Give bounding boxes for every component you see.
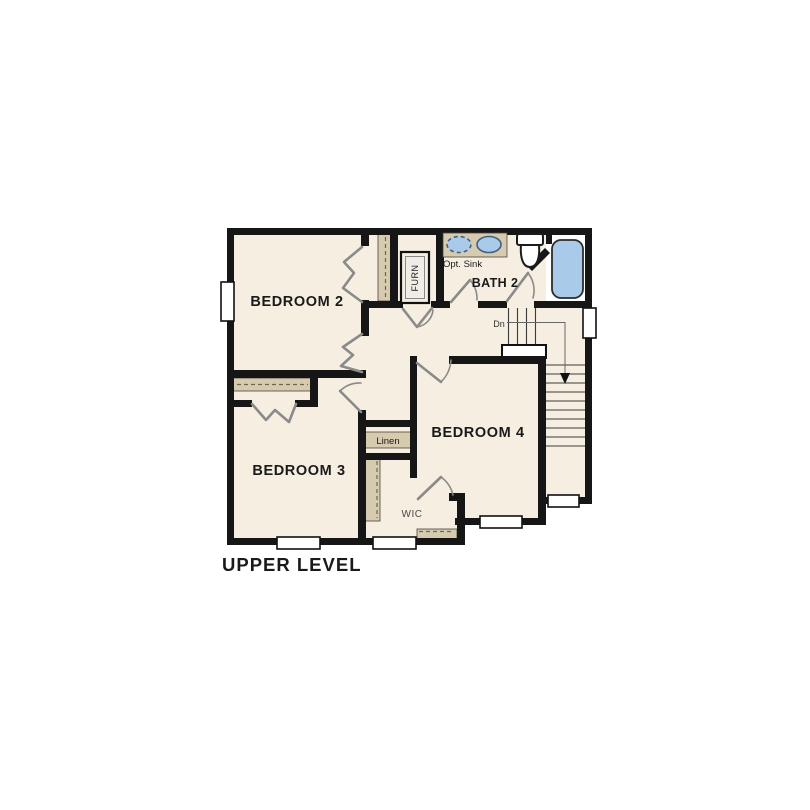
wall-linen-bottom: [358, 453, 417, 460]
sink-basin: [477, 237, 501, 253]
wall-bed4-right: [538, 358, 546, 525]
toilet-bowl: [521, 245, 539, 267]
wall-bed2-bed3-divider: [227, 370, 366, 378]
bath2-label: BATH 2: [472, 276, 519, 290]
wic-side-shelf: [365, 459, 380, 521]
opt-sink-label: Opt. Sink: [443, 259, 482, 270]
bedroom3-label: BEDROOM 3: [252, 463, 345, 479]
wall-bed4-top: [449, 356, 546, 364]
furnace-label: FURN: [410, 265, 420, 292]
wall-bottom-left: [227, 538, 465, 545]
plan-title: UPPER LEVEL: [222, 554, 362, 575]
bathtub: [552, 240, 583, 298]
bedroom4-window: [480, 516, 522, 528]
bedroom2-label: BEDROOM 2: [250, 294, 343, 310]
wall-left: [227, 228, 234, 545]
wall-wic-corner: [449, 493, 465, 501]
stairwell-right-window: [583, 308, 596, 338]
toilet-tank: [517, 234, 543, 245]
stairwell-bottom-window: [548, 495, 579, 507]
floor-plan: BEDROOM 2 BEDROOM 3 BEDROOM 4 BATH 2 Opt…: [0, 0, 810, 810]
stairs-down-label: Dn: [493, 319, 505, 329]
wall-bed3-right: [358, 410, 366, 545]
wall-linen-top: [358, 420, 417, 427]
floor-plan-page: BEDROOM 2 BEDROOM 3 BEDROOM 4 BATH 2 Opt…: [0, 0, 810, 810]
bedroom2-window: [221, 282, 234, 321]
wic-label: WIC: [402, 509, 423, 520]
wall-right: [585, 228, 592, 504]
wall-tub-stub: [546, 228, 552, 244]
bedroom3-window: [277, 537, 320, 549]
wic-window: [373, 537, 416, 549]
optional-sink-basin: [447, 237, 471, 253]
bedroom4-label: BEDROOM 4: [431, 425, 524, 441]
linen-label: Linen: [376, 436, 399, 447]
wall-bed4-left: [410, 356, 417, 478]
